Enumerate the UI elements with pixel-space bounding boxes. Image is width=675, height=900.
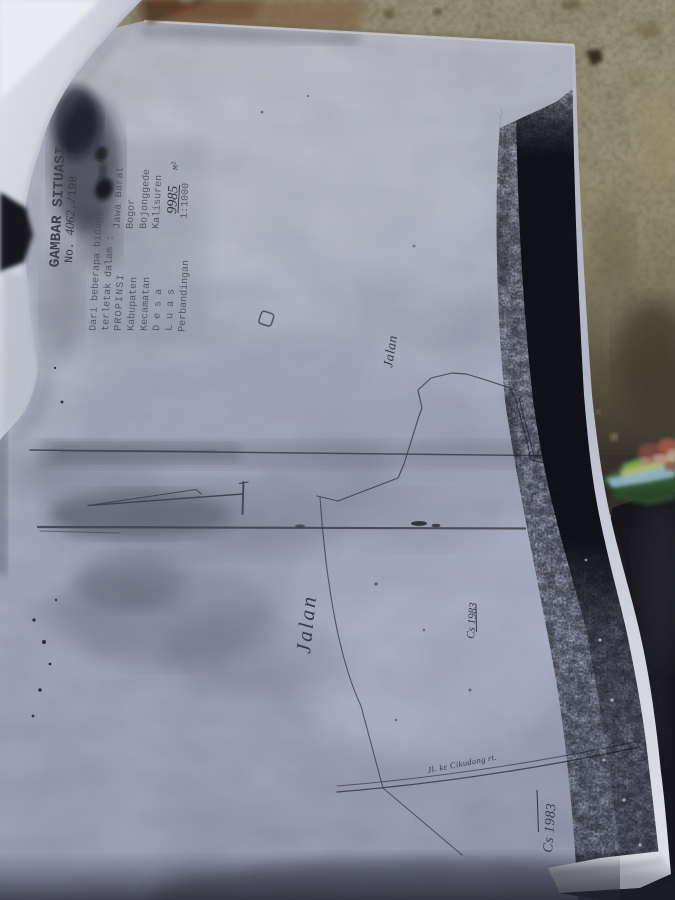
svg-text:D e s a: D e s a — [152, 289, 165, 332]
svg-text:Cs 1983: Cs 1983 — [465, 602, 480, 640]
svg-text:1:1000: 1:1000 — [180, 183, 193, 220]
svg-text:L u a s: L u a s — [165, 289, 178, 332]
svg-text:Bogor: Bogor — [126, 199, 139, 230]
